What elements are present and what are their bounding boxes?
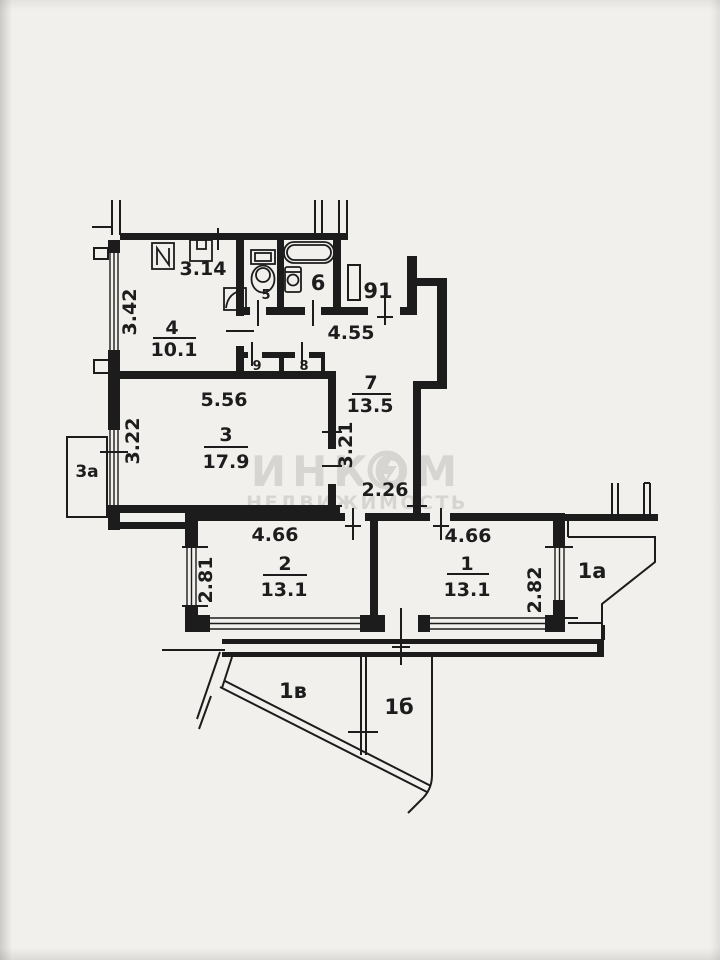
floor-plan-scan: ИНКОМ НЕДВИЖИМОСТЬ bbox=[0, 0, 720, 960]
watermark: ИНКОМ НЕДВИЖИМОСТЬ bbox=[246, 447, 468, 514]
balcony-left-label: 3а bbox=[75, 462, 98, 482]
dim-room2-width: 4.66 bbox=[252, 524, 299, 546]
kitchen-number: 4 bbox=[165, 317, 178, 339]
room1-number: 1 bbox=[460, 553, 473, 575]
stove-icon bbox=[152, 243, 174, 269]
dim-kitchen-width: 3.14 bbox=[180, 258, 227, 280]
toilet-icon bbox=[251, 250, 275, 293]
dim-room3-width: 5.56 bbox=[201, 389, 248, 411]
room3-area: 17.9 bbox=[203, 451, 250, 473]
closet-9-number: 9 bbox=[252, 359, 261, 374]
watermark-brand: ИНКОМ bbox=[251, 447, 463, 496]
room1-area: 13.1 bbox=[444, 579, 491, 601]
corridor-number: 7 bbox=[364, 372, 377, 394]
apartment-number: 91 bbox=[363, 279, 392, 303]
dim-room2-depth: 2.81 bbox=[195, 557, 217, 604]
corridor-area: 13.5 bbox=[347, 395, 394, 417]
kitchen-area: 10.1 bbox=[151, 339, 198, 361]
dim-passage-width: 2.26 bbox=[362, 479, 409, 501]
terrace-v-label: 1в bbox=[279, 679, 307, 703]
bathtub-icon bbox=[284, 242, 334, 263]
dim-kitchen-depth: 3.42 bbox=[119, 289, 141, 336]
wc-number: 5 bbox=[261, 288, 270, 303]
room2-number: 2 bbox=[278, 553, 291, 575]
room2-area: 13.1 bbox=[261, 579, 308, 601]
dim-corridor-depth: 3.21 bbox=[335, 422, 357, 469]
bathroom-number: 6 bbox=[311, 271, 326, 295]
terrace-b-label: 1б bbox=[384, 695, 413, 719]
room3-number: 3 bbox=[219, 424, 232, 446]
dim-hall-width: 4.55 bbox=[328, 322, 375, 344]
balcony-right-label: 1а bbox=[578, 559, 607, 583]
closet-8-number: 8 bbox=[299, 359, 308, 374]
dim-room1-width: 4.66 bbox=[445, 525, 492, 547]
dim-room3-depth: 3.22 bbox=[122, 418, 144, 465]
floor-plan-drawing: ИНКОМ НЕДВИЖИМОСТЬ bbox=[0, 0, 720, 960]
dim-room1-depth: 2.82 bbox=[524, 567, 546, 614]
bath-sink-icon bbox=[285, 267, 301, 292]
